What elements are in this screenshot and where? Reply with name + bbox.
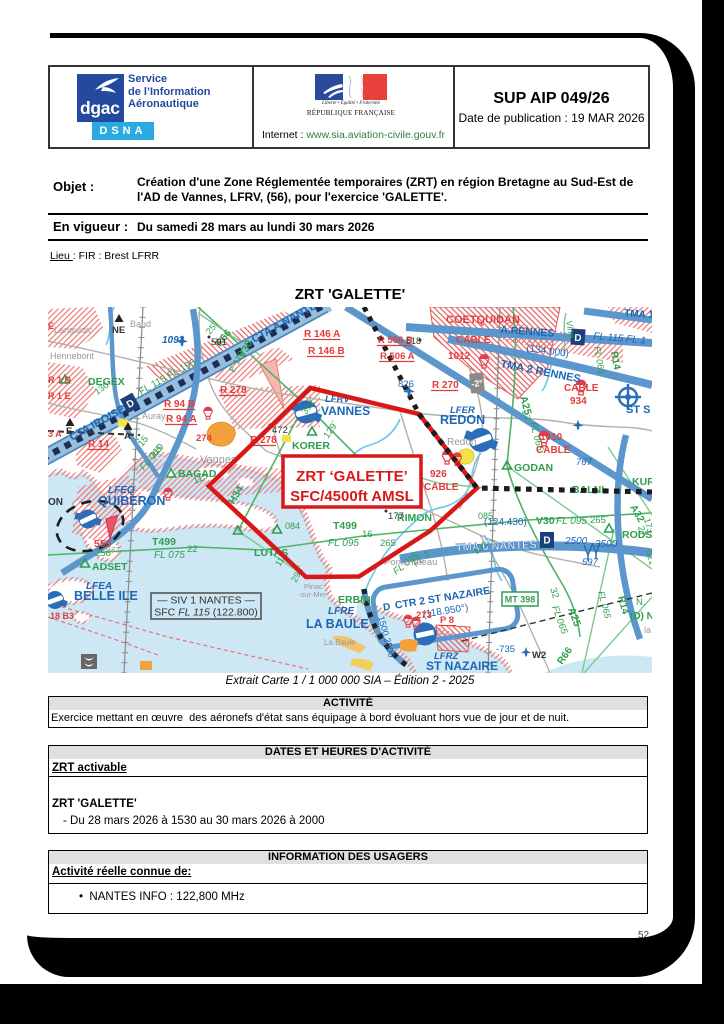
svg-text:GODAN: GODAN	[514, 462, 553, 474]
svg-text:-2°: -2°	[471, 378, 484, 389]
svg-text:FL 095: FL 095	[556, 516, 587, 527]
svg-text:SFC/4500ft AMSL: SFC/4500ft AMSL	[290, 488, 414, 505]
svg-text:VANNES: VANNES	[321, 404, 370, 418]
svg-text:Redon: Redon	[447, 437, 476, 448]
svg-text:25´: 25´	[204, 320, 220, 336]
svg-text:Baud: Baud	[130, 319, 151, 329]
svg-text:MT 398: MT 398	[505, 595, 536, 605]
svg-text:NE: NE	[112, 325, 125, 336]
svg-text:D: D	[382, 602, 391, 614]
svg-text:591: 591	[211, 337, 227, 348]
svg-text:CABLE: CABLE	[536, 445, 571, 456]
svg-text:LFRE: LFRE	[328, 606, 354, 617]
svg-text:R14: R14	[608, 351, 622, 371]
svg-text:W2: W2	[532, 650, 546, 661]
svg-text:16: 16	[362, 529, 373, 540]
svg-text:E: E	[66, 426, 72, 437]
svg-text:518: 518	[406, 336, 421, 346]
svg-text:R 94 B: R 94 B	[164, 399, 195, 410]
svg-text:826: 826	[398, 379, 414, 390]
svg-text:R 506 A: R 506 A	[380, 351, 415, 362]
svg-text:22: 22	[187, 544, 198, 555]
svg-text:FL 075: FL 075	[154, 550, 185, 561]
svg-text:KURIS: KURIS	[632, 476, 652, 488]
svg-text:1093: 1093	[162, 335, 185, 346]
svg-text:R 279: R 279	[220, 385, 247, 396]
svg-text:3 A: 3 A	[48, 429, 62, 439]
svg-text:084: 084	[285, 521, 300, 531]
svg-text:(D) N: (D) N	[630, 611, 652, 622]
svg-text:FL 095: FL 095	[328, 538, 359, 549]
svg-text:N.: N.	[636, 597, 646, 608]
svg-text:18 B3: 18 B3	[50, 611, 74, 621]
svg-text:La Baule: La Baule	[324, 638, 356, 647]
svg-text:ON: ON	[48, 497, 63, 508]
svg-text:FL 065: FL 065	[596, 590, 613, 620]
svg-text:T499: T499	[333, 520, 357, 532]
svg-text:CABLE: CABLE	[564, 383, 599, 394]
svg-text:CABLE: CABLE	[456, 335, 491, 346]
svg-text:R 14: R 14	[88, 439, 110, 450]
svg-text:LA BAULE: LA BAULE	[306, 617, 369, 631]
svg-text:COETQUIDAN: COETQUIDAN	[446, 314, 520, 326]
svg-text:D: D	[543, 536, 550, 547]
svg-text:CABLE: CABLE	[424, 482, 459, 493]
svg-text:T499: T499	[152, 536, 176, 548]
svg-text:926: 926	[430, 469, 447, 480]
svg-text:R 1 E: R 1 E	[48, 391, 71, 401]
svg-text:1010: 1010	[540, 432, 563, 443]
svg-text:BELLE ILE: BELLE ILE	[74, 589, 138, 603]
svg-text:R 270: R 270	[432, 380, 459, 391]
svg-text:274: 274	[196, 433, 213, 444]
svg-text:32: 32	[547, 586, 561, 600]
svg-text:-735: -735	[496, 644, 515, 655]
svg-text:265´: 265´	[590, 515, 609, 526]
svg-text:273: 273	[416, 610, 432, 621]
svg-text:P 8: P 8	[440, 615, 454, 626]
svg-text:R 1 D: R 1 D	[48, 375, 72, 385]
svg-text:Hennebont: Hennebont	[50, 351, 95, 361]
svg-text:Auray: Auray	[142, 411, 166, 421]
svg-text:BALNI: BALNI	[572, 484, 604, 496]
svg-text:597: 597	[582, 557, 599, 568]
svg-text:REDON: REDON	[440, 413, 485, 427]
svg-text:la: la	[644, 625, 651, 635]
svg-text:R 146 A: R 146 A	[304, 329, 340, 340]
svg-text:ADSET: ADSET	[92, 561, 128, 573]
svg-text:R 146 B: R 146 B	[308, 346, 345, 357]
svg-text:TMA 1: TMA 1	[624, 308, 652, 321]
svg-text:085: 085	[478, 511, 493, 521]
svg-text:ERBIN: ERBIN	[338, 594, 371, 606]
svg-text:077: 077	[106, 545, 120, 555]
svg-text:1012: 1012	[448, 351, 471, 362]
svg-text:Languidic: Languidic	[54, 325, 93, 335]
svg-text:265: 265	[380, 538, 396, 549]
svg-text:V30: V30	[536, 515, 555, 527]
svg-text:472: 472	[272, 425, 288, 436]
svg-text:QUIBERON: QUIBERON	[98, 494, 165, 508]
svg-text:2500: 2500	[564, 536, 588, 547]
svg-text:ST NAZAIRE: ST NAZAIRE	[426, 659, 498, 673]
svg-text:— SIV 1 NANTES —: — SIV 1 NANTES —	[157, 595, 256, 607]
svg-text:-sur-Mer: -sur-Mer	[298, 590, 327, 599]
svg-text:Pontchâteau: Pontchâteau	[384, 557, 437, 568]
svg-text:3500: 3500	[595, 539, 618, 550]
svg-text:A: A	[124, 431, 131, 442]
svg-text:767: 767	[576, 457, 593, 468]
svg-text:R 94 A: R 94 A	[166, 414, 197, 425]
svg-text:SFC FL 115 (122.800): SFC FL 115 (122.800)	[154, 607, 258, 619]
svg-text:KORER: KORER	[292, 440, 330, 452]
svg-text:177: 177	[388, 511, 404, 522]
svg-text:934: 934	[570, 396, 587, 407]
svg-text:021´: 021´	[644, 549, 652, 569]
svg-text:ZRT ‘GALETTE’: ZRT ‘GALETTE’	[296, 468, 408, 485]
svg-text:ST S: ST S	[626, 404, 650, 416]
